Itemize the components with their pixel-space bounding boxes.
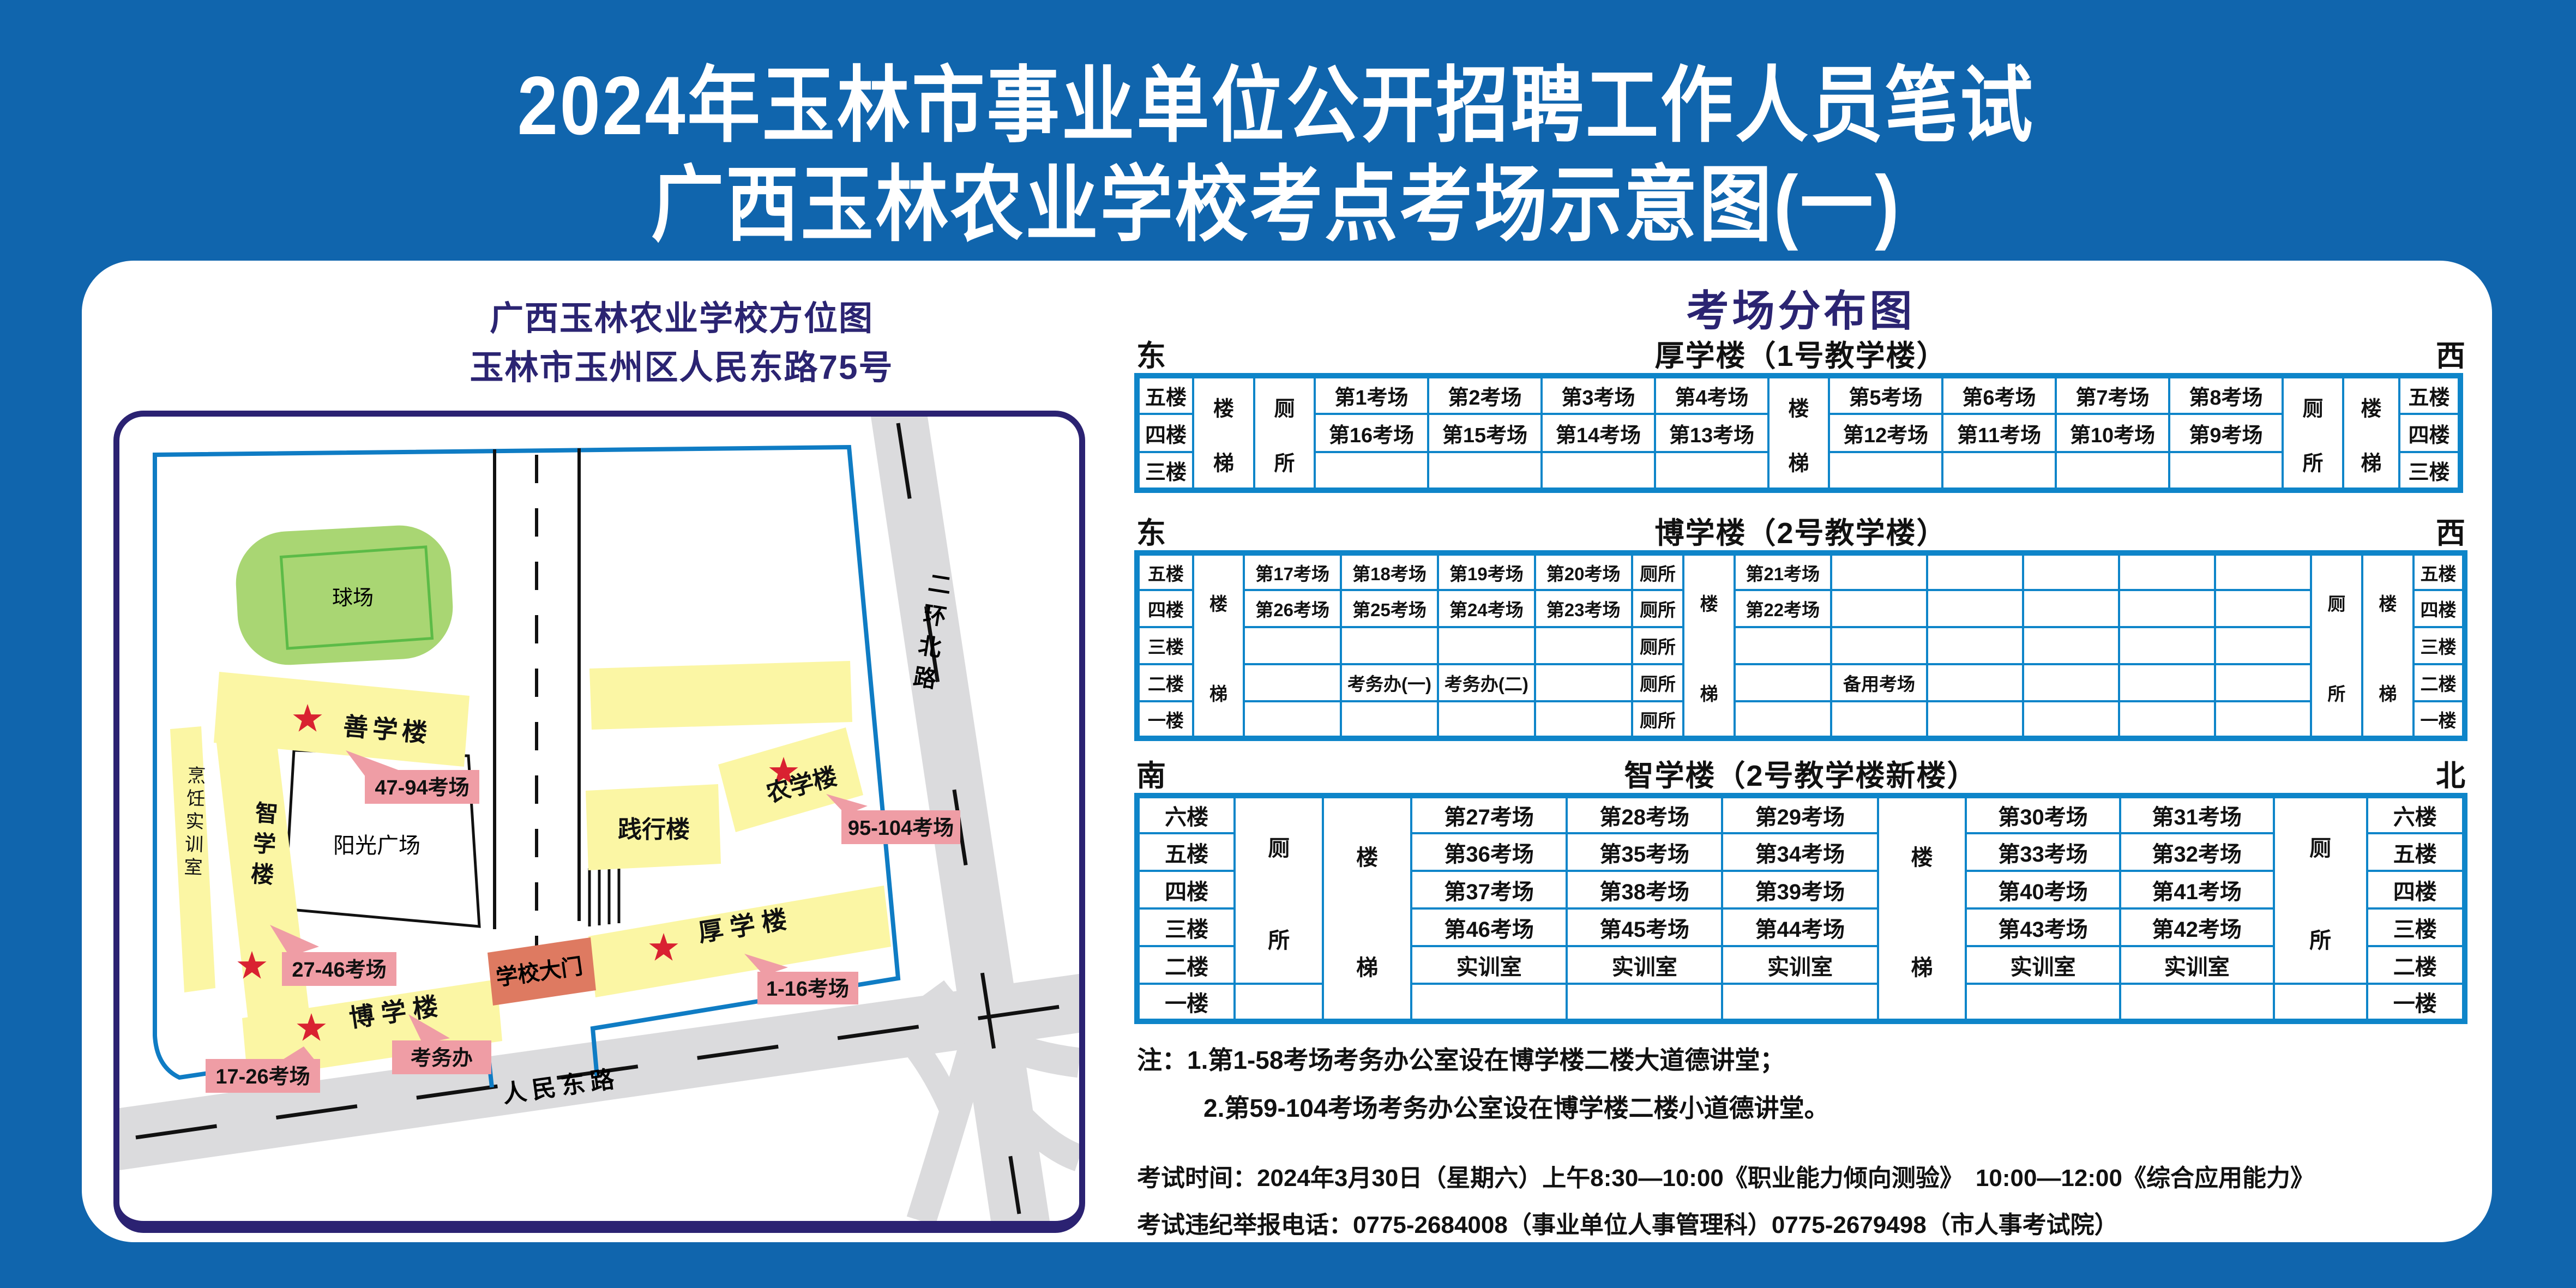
room-cell: 第45考场 xyxy=(1567,908,1722,946)
content-card: 广西玉林农业学校方位图 玉林市玉州区人民东路75号 xyxy=(82,261,2492,1242)
room-cell: 第23考场 xyxy=(1535,590,1632,627)
room-cell: 第7考场 xyxy=(2056,376,2169,414)
stairs-cell: 楼梯 xyxy=(2343,376,2399,490)
floor-label-cell: 二楼 xyxy=(1137,946,1235,984)
empty-cell xyxy=(1829,452,1942,490)
floor-label-cell: 二楼 xyxy=(2367,946,2465,984)
room-cell: 第46考场 xyxy=(1411,908,1567,946)
empty-cell xyxy=(1535,664,1632,701)
empty-cell xyxy=(1235,984,1323,1021)
report-phone-line: 考试违纪举报电话：0775-2684008（事业单位人事管理科）0775-267… xyxy=(1137,1205,2500,1240)
room-cell: 第24考场 xyxy=(1438,590,1535,627)
empty-cell xyxy=(1927,590,2023,627)
floor-label-cell: 五楼 xyxy=(1137,553,1193,590)
room-cell: 第12考场 xyxy=(1829,414,1942,452)
floor-label-cell: 三楼 xyxy=(2399,452,2460,490)
floor-label-cell: 五楼 xyxy=(2367,833,2465,871)
empty-cell xyxy=(1927,701,2023,738)
empty-cell xyxy=(2215,627,2311,664)
toilet-cell: 厕所 xyxy=(1235,796,1323,984)
empty-cell xyxy=(1942,452,2056,490)
empty-cell xyxy=(2023,590,2119,627)
room-cell: 第21考场 xyxy=(1735,553,1831,590)
room-cell: 第34考场 xyxy=(1722,833,1877,871)
room-cell: 第41考场 xyxy=(2120,871,2274,908)
toilet-cell: 厕所 xyxy=(1632,701,1684,738)
room-cell: 第2考场 xyxy=(1428,376,1542,414)
campus-map-panel: 阳光广场 球场 学校大门 xyxy=(113,411,1085,1233)
zhixuelou-room-table: 六楼厕所楼梯第27考场第28考场第29考场楼梯第30考场第31考场厕所六楼五楼第… xyxy=(1134,793,2467,1024)
empty-cell xyxy=(1927,627,2023,664)
building-unlabeled xyxy=(589,661,852,730)
table-block-boxuelou: 东 博学楼（2号教学楼） 西 五楼楼梯第17考场第18考场第19考场第20考场厕… xyxy=(1134,509,2467,741)
map-title-line2: 玉林市玉州区人民东路75号 xyxy=(273,340,1091,389)
room-cell: 第39考场 xyxy=(1722,871,1877,908)
floor-label-cell: 一楼 xyxy=(2367,984,2465,1021)
room-cell: 第20考场 xyxy=(1535,553,1632,590)
room-cell: 第22考场 xyxy=(1735,590,1831,627)
school-gate: 学校大门 xyxy=(487,937,596,1006)
stairs-cell: 楼梯 xyxy=(1193,376,1254,490)
empty-cell xyxy=(1735,701,1831,738)
room-cell: 第27考场 xyxy=(1411,796,1567,833)
room-cell: 第18考场 xyxy=(1341,553,1438,590)
svg-text:1-16考场: 1-16考场 xyxy=(766,978,849,1001)
room-cell: 实训室 xyxy=(1411,946,1567,984)
boxuelou-room-table: 五楼楼梯第17考场第18考场第19考场第20考场厕所楼梯第21考场厕所楼梯五楼四… xyxy=(1134,550,2467,741)
sports-field: 球场 xyxy=(233,523,455,667)
empty-cell xyxy=(1831,553,1928,590)
stairs-cell: 楼梯 xyxy=(1768,376,1829,490)
table-block-houxuelou: 东 厚学楼（1号教学楼） 西 五楼楼梯厕所第1考场第2考场第3考场第4考场楼梯第… xyxy=(1134,332,2467,493)
direction-label-west: 西 xyxy=(2436,332,2465,375)
stairs-cell: 楼梯 xyxy=(2362,553,2414,738)
empty-cell xyxy=(1535,627,1632,664)
map-title-line1: 广西玉林农业学校方位图 xyxy=(273,291,1091,340)
stairs-cell: 楼梯 xyxy=(1683,553,1734,738)
room-cell: 第15考场 xyxy=(1428,414,1542,452)
room-cell: 第9考场 xyxy=(2169,414,2283,452)
empty-cell xyxy=(2023,701,2119,738)
empty-cell xyxy=(1411,984,1567,1021)
note-line-2: 2.第59-104考场考务办公室设在博学楼二楼小道德讲堂。 xyxy=(1137,1088,2500,1124)
floor-label-cell: 五楼 xyxy=(1137,833,1235,871)
empty-cell xyxy=(1567,984,1722,1021)
room-cell: 第4考场 xyxy=(1655,376,1768,414)
empty-cell xyxy=(2119,701,2215,738)
building-table-title: 博学楼（2号教学楼） xyxy=(1134,509,2467,552)
empty-cell xyxy=(1927,664,2023,701)
empty-cell xyxy=(2215,553,2311,590)
floor-label-cell: 二楼 xyxy=(2414,664,2465,701)
empty-cell xyxy=(1341,627,1438,664)
room-cell: 第29考场 xyxy=(1722,796,1877,833)
tag-zhixue: 27-46考场 xyxy=(270,925,396,986)
empty-cell xyxy=(2119,627,2215,664)
empty-cell xyxy=(1542,452,1655,490)
floor-label-cell: 四楼 xyxy=(1137,871,1235,908)
empty-cell xyxy=(1966,984,2120,1021)
floor-label-cell: 二楼 xyxy=(1137,664,1193,701)
svg-text:17-26考场: 17-26考场 xyxy=(215,1066,310,1088)
floor-label-cell: 六楼 xyxy=(2367,796,2465,833)
svg-text:27-46考场: 27-46考场 xyxy=(292,959,386,982)
room-cell: 实训室 xyxy=(2120,946,2274,984)
floor-label-cell: 一楼 xyxy=(1137,984,1235,1021)
svg-text:47-94考场: 47-94考场 xyxy=(375,777,469,799)
empty-cell xyxy=(1438,627,1535,664)
floor-label-cell: 五楼 xyxy=(2399,376,2460,414)
stairs-cell: 楼梯 xyxy=(1193,553,1244,738)
room-cell: 第11考场 xyxy=(1942,414,2056,452)
empty-cell xyxy=(1244,664,1341,701)
toilet-cell: 厕所 xyxy=(1632,664,1684,701)
floor-label-cell: 四楼 xyxy=(2367,871,2465,908)
room-cell: 第14考场 xyxy=(1542,414,1655,452)
room-cell: 第43考场 xyxy=(1966,908,2120,946)
empty-cell xyxy=(1831,627,1928,664)
floor-label-cell: 四楼 xyxy=(1137,590,1193,627)
floor-label-cell: 四楼 xyxy=(2399,414,2460,452)
notes-section: 注：1.第1-58考场考务办公室设在博学楼二楼大道德讲堂； 2.第59-104考… xyxy=(1137,1040,2500,1252)
room-cell: 第35考场 xyxy=(1567,833,1722,871)
empty-cell xyxy=(2274,984,2367,1021)
floor-label-cell: 一楼 xyxy=(1137,701,1193,738)
empty-cell xyxy=(1655,452,1768,490)
room-cell: 第13考场 xyxy=(1655,414,1768,452)
room-cell: 第44考场 xyxy=(1722,908,1877,946)
empty-cell xyxy=(2023,627,2119,664)
empty-cell xyxy=(2215,590,2311,627)
room-cell: 第5考场 xyxy=(1829,376,1942,414)
room-cell: 第8考场 xyxy=(2169,376,2283,414)
empty-cell xyxy=(1244,701,1341,738)
empty-cell xyxy=(1722,984,1877,1021)
empty-cell xyxy=(1535,701,1632,738)
empty-cell xyxy=(1438,701,1535,738)
room-cell: 第17考场 xyxy=(1244,553,1341,590)
empty-cell xyxy=(2215,701,2311,738)
svg-text:考务办: 考务办 xyxy=(411,1047,473,1070)
houxuelou-room-table: 五楼楼梯厕所第1考场第2考场第3考场第4考场楼梯第5考场第6考场第7考场第8考场… xyxy=(1134,373,2463,493)
empty-cell xyxy=(1244,627,1341,664)
toilet-cell: 厕所 xyxy=(2311,553,2362,738)
floor-label-cell: 一楼 xyxy=(2414,701,2465,738)
empty-cell xyxy=(1735,627,1831,664)
direction-label-north: 北 xyxy=(2436,751,2465,795)
room-cell: 第38考场 xyxy=(1567,871,1722,908)
stairs-cell: 楼梯 xyxy=(1323,796,1411,1021)
floor-label-cell: 三楼 xyxy=(1137,627,1193,664)
empty-cell xyxy=(1428,452,1542,490)
floor-label-cell: 五楼 xyxy=(2414,553,2465,590)
room-cell: 第26考场 xyxy=(1244,590,1341,627)
floor-label-cell: 三楼 xyxy=(1137,452,1193,490)
empty-cell xyxy=(1831,701,1928,738)
room-cell: 第16考场 xyxy=(1315,414,1428,452)
room-cell: 考务办(一) xyxy=(1341,664,1438,701)
page-title-line2: 广西玉林农业学校考点考场示意图(一) xyxy=(153,137,2399,257)
empty-cell xyxy=(2119,590,2215,627)
plaza-label: 阳光广场 xyxy=(333,834,420,858)
toilet-cell: 厕所 xyxy=(1632,627,1684,664)
floor-label-cell: 三楼 xyxy=(2414,627,2465,664)
direction-label-west: 西 xyxy=(2436,509,2465,552)
empty-cell xyxy=(1315,452,1428,490)
room-cell: 第19考场 xyxy=(1438,553,1535,590)
floor-label-cell: 六楼 xyxy=(1137,796,1235,833)
table-block-zhixuelou: 南 智学楼（2号教学楼新楼） 北 六楼厕所楼梯第27考场第28考场第29考场楼梯… xyxy=(1134,751,2467,1024)
svg-text:95-104考场: 95-104考场 xyxy=(848,817,954,840)
distribution-title: 考场分布图 xyxy=(1134,277,2467,338)
room-cell: 备用考场 xyxy=(1831,664,1928,701)
floor-label-cell: 五楼 xyxy=(1137,376,1193,414)
room-cell: 第42考场 xyxy=(2120,908,2274,946)
toilet-cell: 厕所 xyxy=(2274,796,2367,984)
empty-cell xyxy=(2215,664,2311,701)
toilet-cell: 厕所 xyxy=(1632,590,1684,627)
empty-cell xyxy=(2023,664,2119,701)
building-table-title: 智学楼（2号教学楼新楼） xyxy=(1134,751,2467,795)
floor-label-cell: 四楼 xyxy=(1137,414,1193,452)
room-cell: 第28考场 xyxy=(1567,796,1722,833)
room-cell: 第31考场 xyxy=(2120,796,2274,833)
toilet-cell: 厕所 xyxy=(2283,376,2343,490)
empty-cell xyxy=(2169,452,2283,490)
empty-cell xyxy=(2120,984,2274,1021)
empty-cell xyxy=(2023,553,2119,590)
empty-cell xyxy=(2056,452,2169,490)
floor-label-cell: 三楼 xyxy=(2367,908,2465,946)
building-table-title: 厚学楼（1号教学楼） xyxy=(1134,332,2467,375)
empty-cell xyxy=(1831,590,1928,627)
toilet-cell: 厕所 xyxy=(1632,553,1684,590)
room-cell: 实训室 xyxy=(1966,946,2120,984)
floor-label-cell: 四楼 xyxy=(2414,590,2465,627)
room-cell: 第10考场 xyxy=(2056,414,2169,452)
room-cell: 第33考场 xyxy=(1966,833,2120,871)
room-cell: 第36考场 xyxy=(1411,833,1567,871)
room-cell: 第6考场 xyxy=(1942,376,2056,414)
empty-cell xyxy=(2119,664,2215,701)
jianxing-label: 践行楼 xyxy=(618,816,690,843)
toilet-cell: 厕所 xyxy=(1254,376,1315,490)
playground-label: 球场 xyxy=(332,587,374,610)
floor-label-cell: 三楼 xyxy=(1137,908,1235,946)
empty-cell xyxy=(1735,664,1831,701)
room-cell: 第32考场 xyxy=(2120,833,2274,871)
room-cell: 第3考场 xyxy=(1542,376,1655,414)
room-cell: 第37考场 xyxy=(1411,871,1567,908)
note-line-1: 注：1.第1-58考场考务办公室设在博学楼二楼大道德讲堂； xyxy=(1137,1040,2500,1076)
room-cell: 第40考场 xyxy=(1966,871,2120,908)
empty-cell xyxy=(2119,553,2215,590)
room-cell: 第25考场 xyxy=(1341,590,1438,627)
room-cell: 第30考场 xyxy=(1966,796,2120,833)
room-cell: 考务办(二) xyxy=(1438,664,1535,701)
empty-cell xyxy=(1341,701,1438,738)
stairs-cell: 楼梯 xyxy=(1878,796,1966,1021)
room-cell: 第1考场 xyxy=(1315,376,1428,414)
campus-map: 阳光广场 球场 学校大门 xyxy=(119,417,1079,1221)
exam-time-line: 考试时间：2024年3月30日（星期六）上午8:30—10:00《职业能力倾向测… xyxy=(1137,1158,2500,1193)
room-cell: 实训室 xyxy=(1567,946,1722,984)
room-cell: 实训室 xyxy=(1722,946,1877,984)
empty-cell xyxy=(1927,553,2023,590)
